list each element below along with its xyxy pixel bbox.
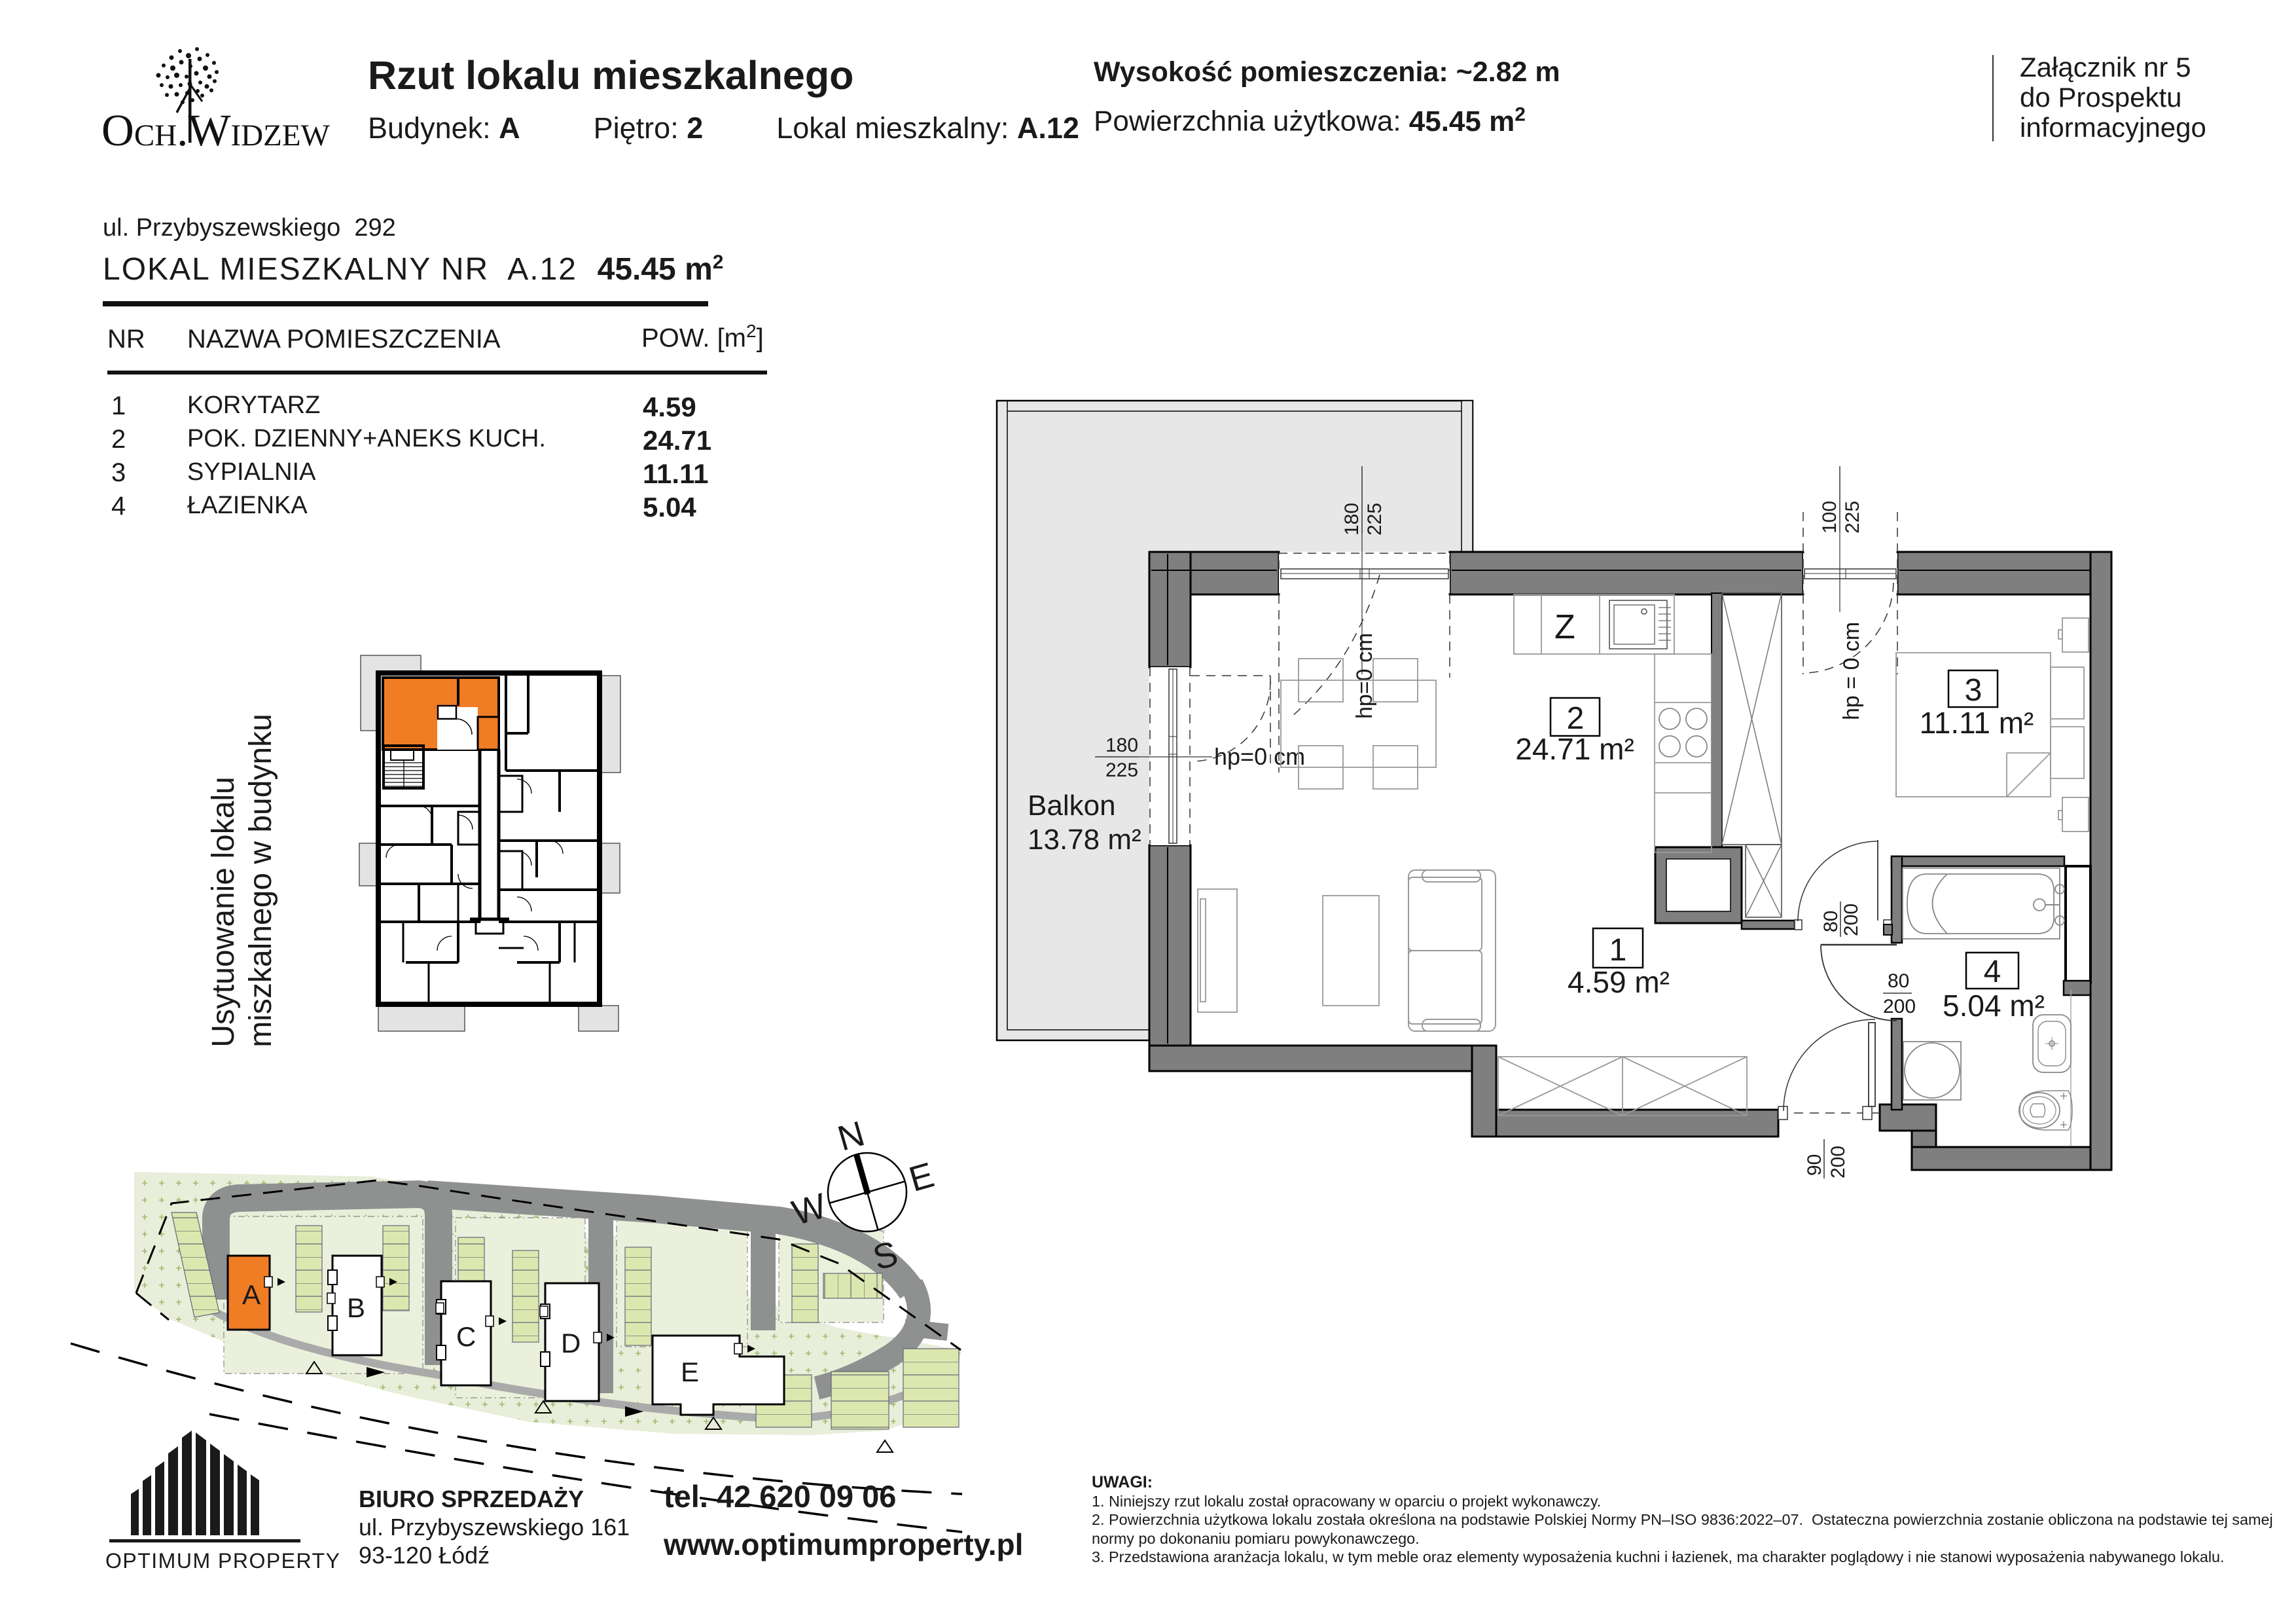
svg-text:E: E [681, 1357, 699, 1387]
svg-text:N: N [833, 1114, 869, 1158]
svg-text:D: D [561, 1328, 581, 1359]
svg-text:E: E [905, 1155, 938, 1199]
svg-text:OPTIMUM PROPERTY: OPTIMUM PROPERTY [105, 1549, 340, 1573]
svg-text:A: A [242, 1279, 260, 1310]
svg-text:B: B [347, 1292, 365, 1323]
svg-text:C: C [456, 1321, 476, 1352]
